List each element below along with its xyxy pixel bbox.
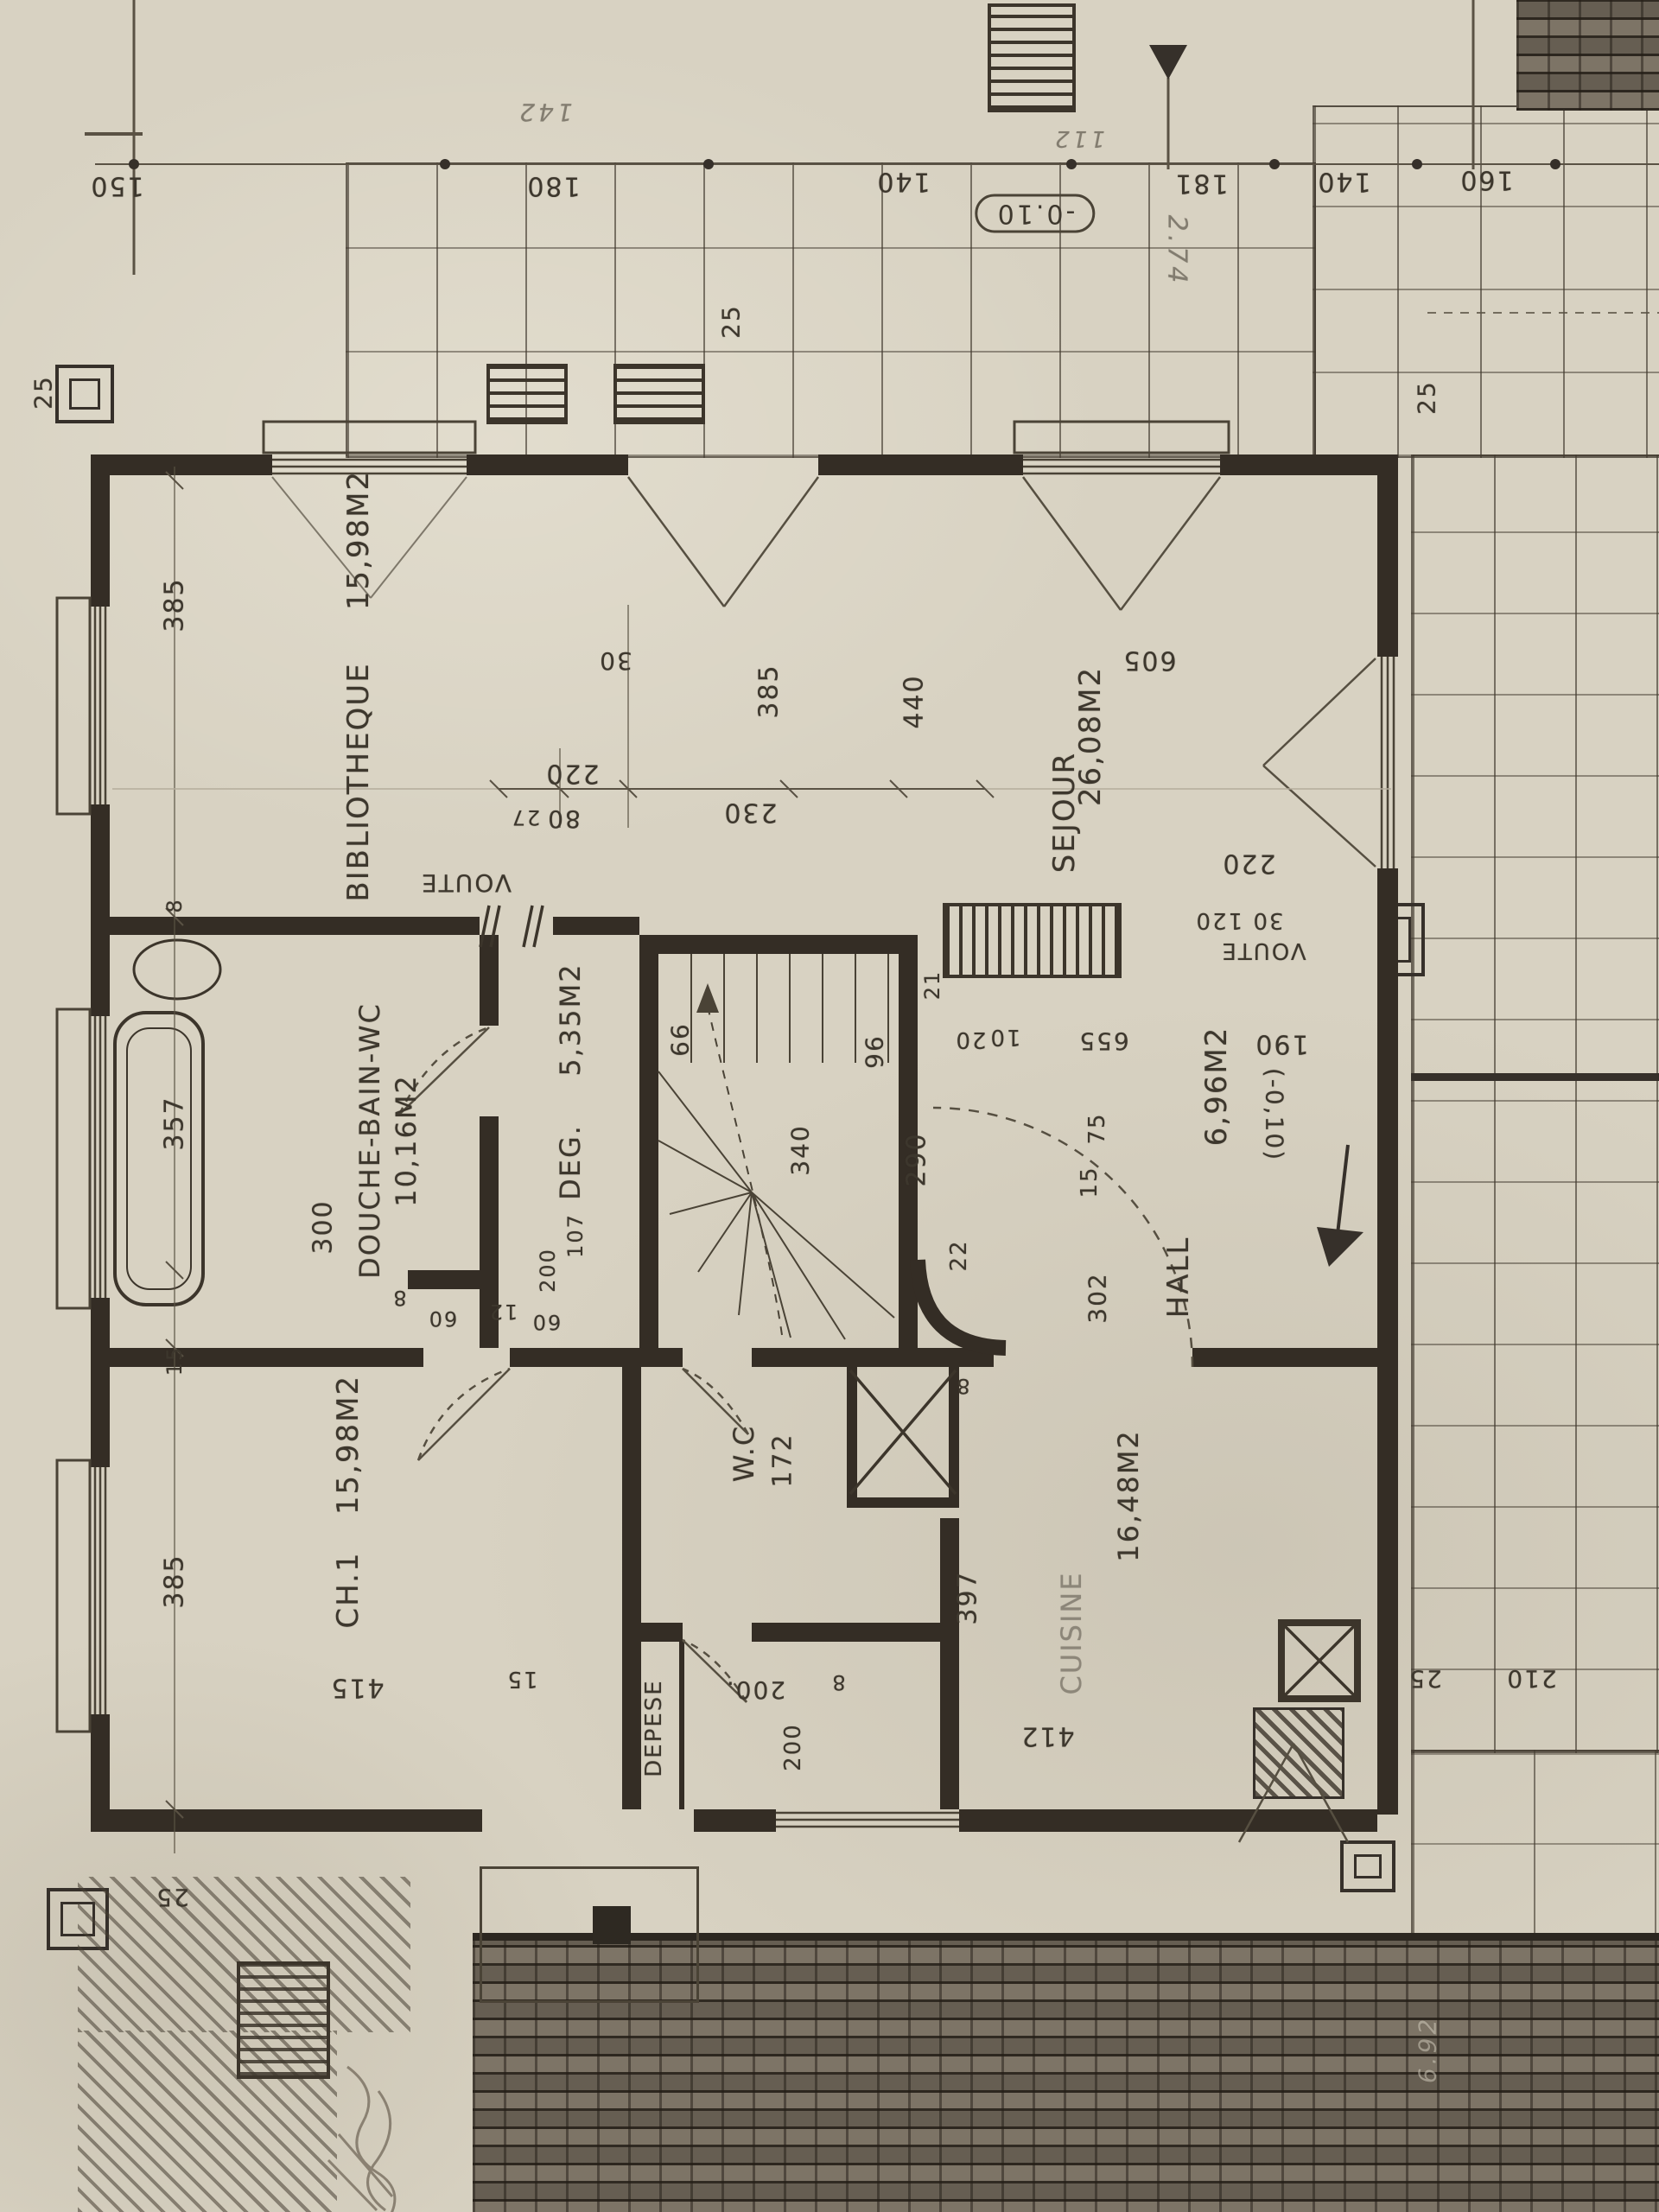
dim-top-140a: 140 bbox=[875, 167, 930, 197]
room-label-deg: DEG. bbox=[554, 1124, 587, 1200]
bathtub bbox=[115, 1013, 203, 1305]
dim-stair-66: 66 bbox=[666, 1022, 695, 1057]
dim-left-15: 15 bbox=[162, 1346, 187, 1376]
dim-mid-440: 440 bbox=[899, 674, 930, 728]
dim-left-8: 8 bbox=[162, 898, 187, 912]
dim-mid-385: 385 bbox=[754, 664, 785, 718]
level-marker-top-value: -0.10 bbox=[995, 199, 1076, 229]
curved-wall bbox=[918, 1260, 1006, 1348]
voute-label-center: VOUTE bbox=[420, 869, 512, 898]
room-area-cuisine: 16,48M2 bbox=[1112, 1429, 1145, 1562]
room-area-ch1: 15,98M2 bbox=[331, 1375, 365, 1515]
voute-label-right: VOUTE bbox=[1220, 938, 1306, 963]
pencil-scribbles bbox=[328, 2067, 395, 2212]
room-label-hall: HALL bbox=[1161, 1236, 1196, 1319]
dim-mid-80: 80 bbox=[546, 805, 581, 834]
dim-stair-15: 15 bbox=[1077, 1166, 1103, 1198]
dim-terrace-25: 25 bbox=[717, 304, 746, 339]
dim-stair-200: 200 bbox=[536, 1248, 560, 1293]
dim-mid-230: 230 bbox=[722, 798, 777, 828]
dim-left-415: 415 bbox=[329, 1673, 384, 1703]
dim-right-220: 220 bbox=[1221, 849, 1275, 879]
dim-store-200: 200. bbox=[725, 1676, 785, 1705]
hand-note-142: 142 bbox=[516, 99, 572, 127]
dim-top-180: 180 bbox=[525, 171, 580, 201]
hall-passage-arc bbox=[933, 1108, 1192, 1367]
dim-right-190: 190 bbox=[1254, 1029, 1308, 1059]
dim-left-385b: 385 bbox=[160, 1554, 190, 1608]
dim-stair-655: 655 bbox=[1077, 1027, 1128, 1056]
dim-wc-397: 397 bbox=[953, 1570, 983, 1624]
dim-top-140b: 140 bbox=[1316, 167, 1370, 197]
plan-linework bbox=[0, 0, 1659, 2212]
dim-mid-220: 220 bbox=[544, 759, 599, 789]
dim-stair-21: 21 bbox=[920, 970, 944, 1001]
dim-stair-302: 302 bbox=[1084, 1272, 1112, 1323]
dim-mid-27: 27 bbox=[511, 805, 541, 829]
dim-mid-605: 605 bbox=[1122, 645, 1176, 676]
dim-left-357: 357 bbox=[160, 1096, 190, 1150]
dim-right-30-120: 30 120 bbox=[1195, 907, 1284, 933]
dim-bath-12: 12 bbox=[488, 1300, 518, 1324]
hand-note-692: 6.92 bbox=[1414, 2016, 1442, 2083]
hand-note-112: 112 bbox=[1052, 125, 1105, 151]
dim-left-300: 300 bbox=[308, 1199, 339, 1254]
dim-left-25-top: 25 bbox=[29, 375, 58, 410]
dim-stair-340: 340 bbox=[786, 1124, 815, 1175]
dim-br-25: 25 bbox=[1408, 1665, 1442, 1694]
dim-store-8: 8 bbox=[830, 1670, 845, 1694]
room-label-douche: DOUCHE-BAIN-WC bbox=[353, 1002, 386, 1279]
dim-top-160: 160 bbox=[1459, 165, 1513, 195]
dim-stair-75: 75 bbox=[1084, 1112, 1110, 1144]
dimension-dots bbox=[129, 45, 1560, 169]
dim-stair-107: 107 bbox=[563, 1213, 588, 1258]
dim-mid-30: 30 bbox=[598, 647, 632, 676]
dim-left-25-bottom: 25 bbox=[155, 1884, 189, 1912]
dim-cuisine-412: 412 bbox=[1020, 1721, 1074, 1751]
washbasin bbox=[134, 940, 220, 999]
room-label-depense: DEPESE bbox=[641, 1679, 667, 1777]
level-marker-top: -0.10 bbox=[976, 194, 1096, 233]
level-marker-right: (-0,10) bbox=[1261, 1068, 1289, 1161]
dim-stair-22: 22 bbox=[946, 1239, 972, 1271]
hall-arrow bbox=[1317, 1145, 1363, 1267]
north-arrow bbox=[1149, 45, 1187, 79]
room-area-deg: 5,35M2 bbox=[554, 963, 587, 1076]
dim-wc-8: 8 bbox=[955, 1374, 969, 1398]
dim-stair-290: 290 bbox=[902, 1132, 932, 1186]
room-area-sejour: 26,08M2 bbox=[1073, 666, 1108, 806]
dim-left-385a: 385 bbox=[160, 577, 190, 632]
room-label-cuisine: CUISINE bbox=[1055, 1571, 1088, 1694]
room-area-douche: 10,16M2 bbox=[390, 1074, 423, 1207]
dim-stair-20: 20 bbox=[954, 1027, 986, 1052]
dim-top-150: 150 bbox=[89, 171, 143, 201]
windows bbox=[57, 422, 1394, 1827]
room-area-hall: 6,96M2 bbox=[1199, 1027, 1234, 1147]
dim-wc-172: 172 bbox=[768, 1433, 798, 1487]
floor-plan-sheet: 150 180 140 181 140 160 142 112 2.74 -0.… bbox=[0, 0, 1659, 2212]
dim-store-200v: 200 bbox=[780, 1723, 806, 1771]
hand-note-274: 2.74 bbox=[1162, 215, 1192, 287]
dim-br-210: 210 bbox=[1505, 1665, 1556, 1694]
dim-left-15b: 15 bbox=[505, 1666, 537, 1692]
dim-bath-8: 8 bbox=[391, 1286, 406, 1310]
room-label-wc: W.C bbox=[728, 1425, 760, 1482]
shaft-x-marks bbox=[850, 1370, 1357, 1699]
stair bbox=[658, 954, 894, 1339]
dim-top-181: 181 bbox=[1173, 168, 1228, 199]
dim-stair-96: 96 bbox=[861, 1034, 889, 1069]
room-label-ch1: CH.1 bbox=[331, 1551, 365, 1628]
dim-bath-60a: 60 bbox=[428, 1306, 458, 1331]
room-label-bibliotheque: BIBLIOTHEQUE bbox=[341, 662, 376, 901]
dim-right-25-top: 25 bbox=[1413, 380, 1441, 415]
dim-stair-10: 10 bbox=[988, 1024, 1020, 1050]
room-area-bibliotheque: 15,98M2 bbox=[341, 470, 376, 610]
dim-bath-60b: 60 bbox=[531, 1310, 562, 1334]
